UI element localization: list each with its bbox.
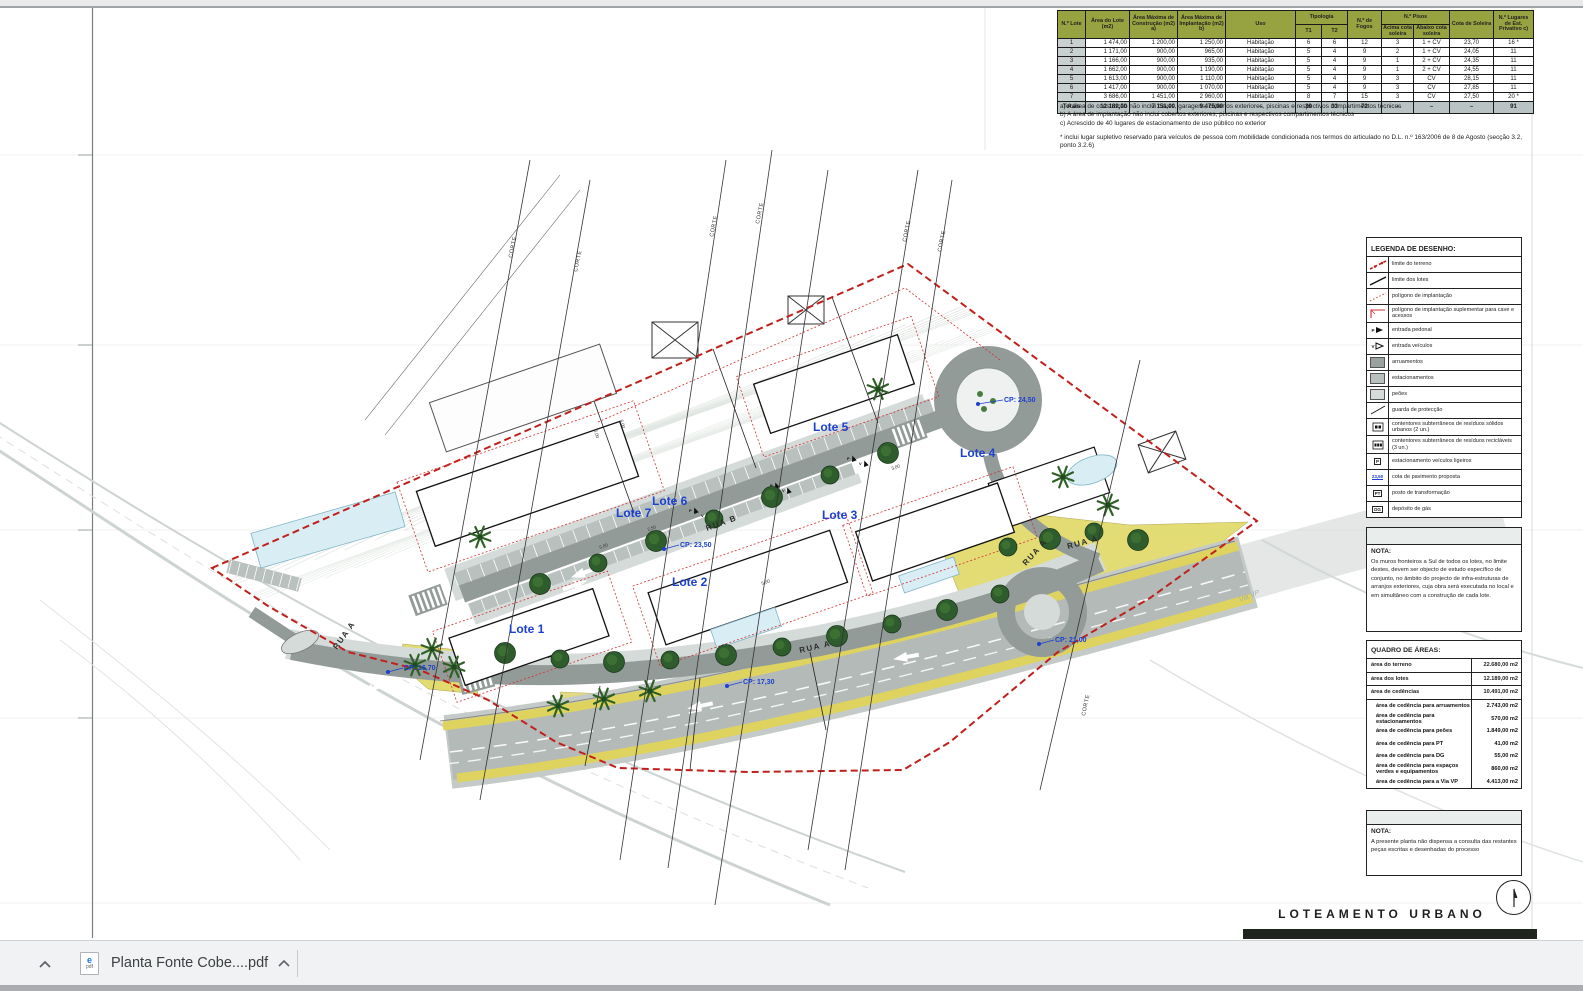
legend-item: 23,50cota de pavimento proposta [1367, 469, 1521, 485]
legend-item-label: cota de pavimento proposta [1389, 470, 1463, 485]
pavement-elevation-label: CP: 21,00 [1055, 637, 1087, 644]
legend-item-label: limite do terreno [1389, 257, 1434, 272]
cell: 3 [1382, 93, 1414, 102]
title-block-bar [1243, 929, 1537, 939]
cell: 900,00 [1130, 48, 1178, 57]
roads [228, 405, 1500, 778]
legend-item: limite dos lotes [1367, 272, 1521, 288]
lot-label: Lote 6 [652, 494, 688, 508]
cell: 3 [1382, 84, 1414, 93]
sw-light-icon [1367, 387, 1389, 402]
cell: Habitação [1226, 39, 1296, 48]
cell: 4 [1322, 66, 1348, 75]
entrada-pedonal-icon: P [1367, 323, 1389, 338]
cell: 24,55 [1450, 66, 1494, 75]
area-value: 1.849,00 m2 [1471, 725, 1521, 738]
cell: 1 474,00 [1086, 39, 1130, 48]
area-value: 22.680,00 m2 [1471, 659, 1521, 672]
legend-item: PTposto de transformação [1367, 485, 1521, 501]
table-row: 51 613,00900,001 110,00Habitação5493CV28… [1058, 75, 1534, 84]
area-value: 12.189,00 m2 [1471, 673, 1521, 686]
area-value: 860,00 m2 [1471, 763, 1521, 776]
section-label: CORTE [709, 215, 719, 237]
cell: 4 [1322, 48, 1348, 57]
cell: 1 250,00 [1178, 39, 1226, 48]
section-label: CORTE [1081, 694, 1091, 716]
column-header: Cota de Soleira [1450, 11, 1494, 39]
legend-item: estacionamentos [1367, 370, 1521, 386]
area-label: área de cedência para PT [1367, 741, 1471, 747]
cell: 9 [1348, 57, 1382, 66]
legend-item-label: depósito de gás [1389, 502, 1434, 517]
pavement-elevation-label: CP: 16,70 [404, 665, 436, 672]
cell: 11 [1494, 75, 1534, 84]
window-top-edge [0, 0, 1583, 8]
cell: 2 + CV [1414, 66, 1450, 75]
legend-item: contentores subterrâneos de resíduos rec… [1367, 435, 1521, 453]
entrada-veiculos-icon: V [1367, 339, 1389, 354]
lot-label: Lote 1 [509, 622, 545, 636]
area-value: 570,00 m2 [1471, 712, 1521, 725]
area-row: área de cedência para a Via VP4.413,00 m… [1367, 775, 1521, 788]
lot-label: Lote 4 [960, 446, 996, 460]
cell: 27,85 [1450, 84, 1494, 93]
cell: 4 [1322, 84, 1348, 93]
column-header: Área Máxima de Implantação (m2) b) [1178, 11, 1226, 39]
legend-title: LEGENDA DE DESENHO: [1367, 238, 1521, 256]
legend-item-label: entrada veículos [1389, 339, 1435, 354]
cell: 3 686,00 [1086, 93, 1130, 102]
section-label: CORTE [755, 202, 765, 224]
legend-item-label: estacionamento veículos ligeiros [1389, 454, 1475, 469]
legend-item: peões [1367, 386, 1521, 402]
area-label: área de cedência para arruamentos [1367, 703, 1471, 709]
legend-item: Pentrada pedonal [1367, 322, 1521, 338]
pol-impl-sup-icon [1367, 305, 1389, 322]
legend-item-label: estacionamentos [1389, 371, 1437, 386]
cell: 4 [1322, 75, 1348, 84]
area-label: área de cedência para DG [1367, 753, 1471, 759]
cell: 1 190,00 [1178, 66, 1226, 75]
cell: 9 [1348, 48, 1382, 57]
legend-item: contentores subterrâneos de resíduos sól… [1367, 418, 1521, 436]
sw-mid-icon [1367, 371, 1389, 386]
cell: 6 [1296, 39, 1322, 48]
est-ligeiros-icon: P [1367, 454, 1389, 469]
pavement-elevation-label: CP: 17,30 [743, 679, 775, 686]
download-bar: e pdf Planta Fonte Cobe....pdf [0, 940, 1583, 986]
chip-divider [297, 950, 298, 977]
cell: 9 [1348, 84, 1382, 93]
footnote: a) A área de construção não inclui caves… [1060, 103, 1534, 111]
legend-item: Pestacionamento veículos ligeiros [1367, 453, 1521, 469]
cell: 4 [1322, 57, 1348, 66]
legend-item: polígono de implantação [1367, 288, 1521, 304]
nota2-title: NOTA: [1367, 825, 1521, 836]
cell: Habitação [1226, 57, 1296, 66]
cell: 1 200,00 [1130, 39, 1178, 48]
cell: 15 [1348, 93, 1382, 102]
cell: 7 [1058, 93, 1086, 102]
cell: 23,70 [1450, 39, 1494, 48]
area-label: área de cedência para peões [1367, 728, 1471, 734]
area-label: área de cedências [1367, 689, 1471, 695]
cell: Habitação [1226, 84, 1296, 93]
cell: 12 [1348, 39, 1382, 48]
area-value: 55,00 m2 [1471, 750, 1521, 763]
cell: 11 [1494, 84, 1534, 93]
table-row: 11 474,001 200,001 250,00Habitação661231… [1058, 39, 1534, 48]
cell: 16 * [1494, 39, 1534, 48]
cell: 27,50 [1450, 93, 1494, 102]
cell: 900,00 [1130, 57, 1178, 66]
cell: 1 662,00 [1086, 66, 1130, 75]
cell: 5 [1296, 57, 1322, 66]
column-header: N.º Lugares de Est. Privativo c) [1494, 11, 1534, 39]
area-row: área dos lotes12.189,00 m2 [1367, 673, 1521, 687]
chevron-up-icon [38, 960, 52, 968]
cell: Habitação [1226, 66, 1296, 75]
collapse-bar-button[interactable] [30, 949, 60, 979]
cell: 935,00 [1178, 57, 1226, 66]
cell: 4 [1058, 66, 1086, 75]
cell: Habitação [1226, 75, 1296, 84]
legend-item-label: peões [1389, 387, 1410, 402]
legend-item-label: arruamentos [1389, 355, 1426, 370]
cell: 1 417,00 [1086, 84, 1130, 93]
cell: 20 * [1494, 93, 1534, 102]
cell: 24,35 [1450, 57, 1494, 66]
column-header: T2 [1322, 25, 1348, 39]
areas-table-panel: QUADRO DE ÁREAS: área do terreno22.680,0… [1366, 640, 1522, 789]
cell: 1 [1058, 39, 1086, 48]
cell: 5 [1296, 66, 1322, 75]
area-row: área de cedência para PT41,00 m2 [1367, 738, 1521, 751]
cell: 11 [1494, 48, 1534, 57]
nota-panel-2: NOTA: A presente planta não dispensa a c… [1366, 810, 1522, 876]
cell: 2 [1382, 48, 1414, 57]
svg-text:V: V [782, 488, 785, 493]
cell: 1 + CV [1414, 48, 1450, 57]
cell: 6 [1322, 39, 1348, 48]
column-header: Uso [1226, 11, 1296, 39]
area-row: área de cedência para espaços verdes e e… [1367, 763, 1521, 776]
legend-item: guarda de protecção [1367, 402, 1521, 418]
cell: 2 960,00 [1178, 93, 1226, 102]
cell: 1 166,00 [1086, 57, 1130, 66]
table-row: 61 417,00900,001 070,00Habitação5493CV27… [1058, 84, 1534, 93]
file-name: Planta Fonte Cobe....pdf [111, 955, 268, 971]
footnote-star: * inclui lugar supletivo reservado para … [1060, 134, 1534, 151]
cell: 900,00 [1130, 66, 1178, 75]
table-row: 73 686,001 451,002 960,00Habitação87153C… [1058, 93, 1534, 102]
column-header: Acima cota soleira [1382, 25, 1414, 39]
pdf-file-icon: e pdf [80, 952, 99, 975]
svg-text:V: V [701, 513, 704, 518]
cell: 5 [1296, 75, 1322, 84]
legend-item-label: contentores subterrâneos de resíduos rec… [1389, 436, 1521, 453]
cell: 1 [1382, 57, 1414, 66]
cell: 9 [1348, 75, 1382, 84]
cell: 3 [1058, 57, 1086, 66]
cell: 7 [1322, 93, 1348, 102]
nota1-title: NOTA: [1367, 545, 1521, 556]
svg-text:P: P [847, 456, 850, 461]
downloaded-file-chip[interactable]: e pdf Planta Fonte Cobe....pdf [74, 946, 296, 980]
areas-table-title: QUADRO DE ÁREAS: [1367, 641, 1521, 659]
area-row: área de cedência para estacionamentos570… [1367, 712, 1521, 725]
cell: 900,00 [1130, 75, 1178, 84]
area-row: área de cedências10.491,00 m2 [1367, 686, 1521, 700]
cell: 1 613,00 [1086, 75, 1130, 84]
sw-dark-icon [1367, 355, 1389, 370]
cell: 11 [1494, 57, 1534, 66]
nota1-text: Os muros fronteiros a Sul de todos os lo… [1367, 556, 1521, 605]
guarda-icon [1367, 403, 1389, 418]
legend-item: Ventrada veículos [1367, 338, 1521, 354]
cell: 6 [1058, 84, 1086, 93]
dg-icon: DG [1367, 502, 1389, 517]
cell: 1 070,00 [1178, 84, 1226, 93]
column-header: Área do Lote (m2) [1086, 11, 1130, 39]
cell: 11 [1494, 66, 1534, 75]
dimension-label: 3,00 [891, 463, 901, 471]
cell: 1 [1382, 66, 1414, 75]
legend-item: DGdepósito de gás [1367, 501, 1521, 517]
window-bottom-edge [0, 985, 1583, 991]
lot-label: Lote 5 [813, 420, 849, 434]
legend-item-label: posto de transformação [1389, 486, 1453, 501]
lot-label: Lote 3 [822, 508, 858, 522]
cell: 9 [1348, 66, 1382, 75]
column-header: N.º de Fogos [1348, 11, 1382, 39]
table-row: 21 171,00900,00965,00Habitação54921 + CV… [1058, 48, 1534, 57]
cell: 1 451,00 [1130, 93, 1178, 102]
area-label: área do terreno [1367, 662, 1471, 668]
legend-panel: LEGENDA DE DESENHO: limite do terrenolim… [1366, 237, 1522, 518]
nota1-header-band [1367, 528, 1521, 545]
table-row: 31 166,00900,00935,00Habitação54912 + CV… [1058, 57, 1534, 66]
legend-item-label: entrada pedonal [1389, 323, 1435, 338]
cell: 1 + CV [1414, 39, 1450, 48]
legend-item-label: guarda de protecção [1389, 403, 1445, 418]
cell: Habitação [1226, 48, 1296, 57]
area-value: 41,00 m2 [1471, 738, 1521, 751]
pt-icon: PT [1367, 486, 1389, 501]
area-label: área de cedência para estacionamentos [1367, 713, 1471, 725]
limite-lotes-icon [1367, 273, 1389, 288]
cell: 900,00 [1130, 84, 1178, 93]
cell: CV [1414, 84, 1450, 93]
section-label: CORTE [573, 250, 583, 272]
table-footnotes: a) A área de construção não inclui caves… [1060, 103, 1534, 151]
cell: 3 [1382, 75, 1414, 84]
column-header: N.º Lote [1058, 11, 1086, 39]
cell: CV [1414, 93, 1450, 102]
cell: 8 [1296, 93, 1322, 102]
cell: 3 [1382, 39, 1414, 48]
svg-text:V: V [859, 461, 862, 466]
lot-parameters-table: N.º LoteÁrea do Lote (m2)Área Máxima de … [1057, 10, 1534, 114]
svg-text:P: P [689, 508, 692, 513]
area-value: 2.743,00 m2 [1471, 700, 1521, 713]
nota2-header-band [1367, 811, 1521, 825]
legend-item-label: polígono de implantação [1389, 289, 1455, 304]
pol-impl-icon [1367, 289, 1389, 304]
table-row: 41 662,00900,001 190,00Habitação54912 + … [1058, 66, 1534, 75]
cell: 24,05 [1450, 48, 1494, 57]
cell: 1 171,00 [1086, 48, 1130, 57]
lot-label: Lote 2 [672, 575, 708, 589]
area-row: área de cedência para peões1.849,00 m2 [1367, 725, 1521, 738]
legend-item-label: contentores subterrâneos de resíduos sól… [1389, 419, 1521, 436]
file-chevron-up-icon[interactable] [278, 960, 290, 967]
nota-panel-1: NOTA: Os muros fronteiros a Sul de todos… [1366, 527, 1522, 632]
area-label: área dos lotes [1367, 676, 1471, 682]
column-header: Abaixo cota soleira [1414, 25, 1450, 39]
cell: 965,00 [1178, 48, 1226, 57]
nota2-text: A presente planta não dispensa a consult… [1367, 836, 1521, 860]
column-header: Área Máxima de Construção (m2) a) [1130, 11, 1178, 39]
legend-item-label: polígono de implantação suplementar para… [1389, 305, 1521, 322]
lot-label: Lote 7 [616, 506, 652, 520]
column-header: Tipologia [1296, 11, 1348, 25]
cell: 2 [1058, 48, 1086, 57]
footnote: b) A área de implantação não inclui cobe… [1060, 111, 1534, 119]
legend-item: limite do terreno [1367, 256, 1521, 272]
column-header: N.º Pisos [1382, 11, 1450, 25]
area-row: área de cedência para DG55,00 m2 [1367, 750, 1521, 763]
legend-item-label: limite dos lotes [1389, 273, 1431, 288]
cell: 5 [1296, 84, 1322, 93]
sheet-title: LOTEAMENTO URBANO [1252, 907, 1512, 921]
area-label: área de cedência para espaços verdes e e… [1367, 763, 1471, 775]
legend-item: arruamentos [1367, 354, 1521, 370]
pavement-elevation-label: CP: 24,50 [1004, 397, 1036, 404]
cell: 1 110,00 [1178, 75, 1226, 84]
cell: 28,15 [1450, 75, 1494, 84]
section-label: CORTE [902, 220, 912, 242]
pavement-elevation-label: CP: 23,50 [680, 542, 712, 549]
cell: 5 [1058, 75, 1086, 84]
area-value: 10.491,00 m2 [1471, 686, 1521, 699]
pdf-viewer-page: PVPVPVPV [0, 0, 1583, 991]
cell: 5 [1296, 48, 1322, 57]
area-row: área do terreno22.680,00 m2 [1367, 659, 1521, 673]
section-label: CORTE [937, 230, 947, 252]
section-label: CORTE [508, 236, 518, 258]
limite-terreno-icon [1367, 257, 1389, 272]
footnote: c) Acrescido de 40 lugares de estacionam… [1060, 120, 1534, 128]
area-label: área de cedência para a Via VP [1367, 779, 1471, 785]
cell: 2 + CV [1414, 57, 1450, 66]
area-value: 4.413,00 m2 [1471, 775, 1521, 788]
cota-pav-icon: 23,50 [1367, 470, 1389, 485]
cell: Habitação [1226, 93, 1296, 102]
cell: CV [1414, 75, 1450, 84]
column-header: T1 [1296, 25, 1322, 39]
cont-3-icon [1367, 436, 1389, 453]
cont-2-icon [1367, 419, 1389, 436]
area-row: área de cedência para arruamentos2.743,0… [1367, 700, 1521, 713]
legend-item: polígono de implantação suplementar para… [1367, 304, 1521, 322]
